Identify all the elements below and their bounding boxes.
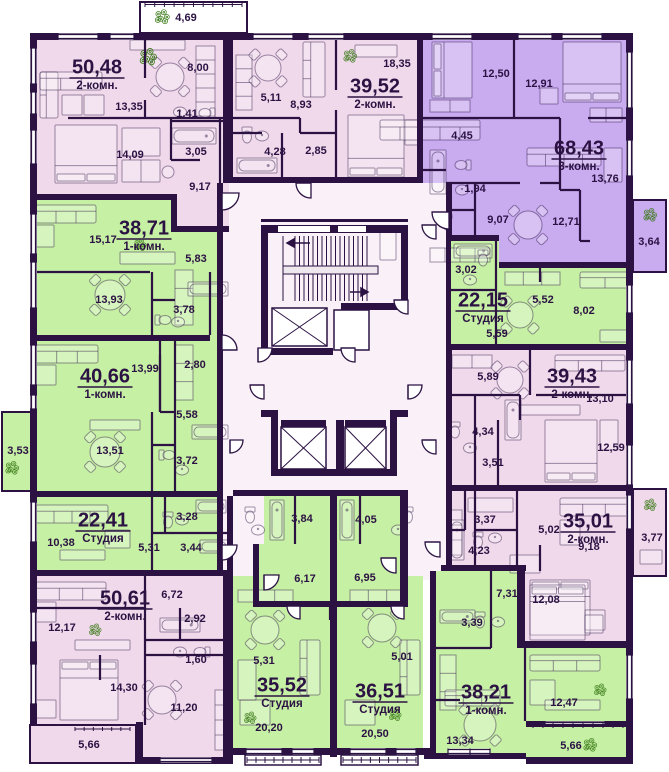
svg-text:4,05: 4,05 — [355, 514, 376, 526]
svg-text:14,30: 14,30 — [110, 682, 138, 694]
svg-text:2-комн.: 2-комн. — [567, 534, 608, 546]
svg-text:Студия: Студия — [462, 313, 503, 325]
svg-text:5,66: 5,66 — [78, 739, 99, 751]
svg-text:1,60: 1,60 — [185, 654, 206, 666]
svg-text:4,23: 4,23 — [468, 545, 489, 557]
svg-text:3-комн.: 3-комн. — [558, 161, 599, 173]
svg-text:6,95: 6,95 — [354, 572, 375, 584]
svg-text:12,71: 12,71 — [552, 216, 580, 228]
svg-text:22,41: 22,41 — [78, 509, 128, 531]
svg-text:35,52: 35,52 — [257, 674, 307, 696]
svg-text:12,17: 12,17 — [48, 622, 76, 634]
svg-text:22,15: 22,15 — [458, 289, 508, 311]
svg-text:36,51: 36,51 — [355, 680, 405, 702]
svg-text:12,50: 12,50 — [482, 68, 510, 80]
svg-text:1,41: 1,41 — [176, 108, 197, 120]
svg-text:6,72: 6,72 — [161, 589, 182, 601]
svg-text:5,01: 5,01 — [391, 651, 412, 663]
svg-text:13,93: 13,93 — [95, 294, 123, 306]
svg-text:1-комн.: 1-комн. — [84, 389, 125, 401]
svg-text:3,72: 3,72 — [176, 455, 197, 467]
svg-text:20,20: 20,20 — [255, 722, 283, 734]
svg-text:3,64: 3,64 — [638, 236, 660, 248]
svg-text:15,17: 15,17 — [89, 234, 117, 246]
svg-text:50,48: 50,48 — [72, 56, 122, 78]
svg-text:4,69: 4,69 — [175, 12, 196, 24]
svg-text:13,34: 13,34 — [446, 735, 474, 747]
svg-text:13,76: 13,76 — [591, 173, 619, 185]
svg-text:11,20: 11,20 — [171, 702, 198, 714]
svg-text:2-комн.: 2-комн. — [104, 611, 145, 623]
svg-text:2,80: 2,80 — [184, 359, 205, 371]
svg-text:4,34: 4,34 — [472, 426, 494, 438]
svg-text:8,93: 8,93 — [290, 99, 311, 111]
svg-text:12,47: 12,47 — [550, 697, 578, 709]
svg-text:4,28: 4,28 — [264, 146, 285, 158]
svg-text:5,31: 5,31 — [138, 542, 159, 554]
svg-text:7,31: 7,31 — [496, 588, 517, 600]
svg-text:3,37: 3,37 — [474, 514, 495, 526]
svg-text:9,07: 9,07 — [487, 214, 508, 226]
svg-text:8,00: 8,00 — [187, 62, 208, 74]
svg-text:35,01: 35,01 — [563, 510, 613, 532]
svg-text:Студия: Студия — [82, 533, 123, 545]
svg-text:2-комн.: 2-комн. — [76, 80, 117, 92]
svg-text:39,52: 39,52 — [350, 75, 400, 97]
svg-text:3,39: 3,39 — [461, 617, 482, 629]
svg-text:3,28: 3,28 — [176, 511, 197, 523]
svg-text:Студия: Студия — [261, 698, 302, 710]
svg-text:5,02: 5,02 — [538, 524, 559, 536]
svg-text:14,09: 14,09 — [116, 149, 144, 161]
svg-text:3,02: 3,02 — [455, 264, 476, 276]
svg-text:5,58: 5,58 — [176, 409, 197, 421]
svg-text:4,45: 4,45 — [451, 130, 472, 142]
svg-text:5,52: 5,52 — [532, 294, 553, 306]
svg-text:20,50: 20,50 — [361, 728, 389, 740]
svg-text:5,11: 5,11 — [261, 92, 282, 104]
svg-text:38,21: 38,21 — [461, 681, 511, 703]
svg-text:5,59: 5,59 — [486, 328, 507, 340]
svg-text:3,77: 3,77 — [641, 532, 662, 544]
svg-text:3,44: 3,44 — [180, 542, 202, 554]
svg-text:3,53: 3,53 — [7, 445, 28, 457]
svg-text:8,02: 8,02 — [573, 305, 594, 317]
svg-text:1-комн.: 1-комн. — [465, 705, 506, 717]
svg-text:40,66: 40,66 — [80, 365, 130, 387]
svg-text:12,59: 12,59 — [597, 442, 625, 454]
svg-text:12,91: 12,91 — [525, 78, 553, 90]
svg-text:5,89: 5,89 — [477, 371, 498, 383]
svg-text:10,38: 10,38 — [47, 537, 75, 549]
svg-text:2,92: 2,92 — [184, 613, 205, 625]
svg-text:3,84: 3,84 — [291, 513, 313, 525]
svg-text:1-комн.: 1-комн. — [123, 241, 164, 253]
svg-text:13,99: 13,99 — [131, 363, 159, 375]
svg-text:2-комн.: 2-комн. — [354, 99, 395, 111]
svg-text:5,83: 5,83 — [185, 253, 206, 265]
svg-text:2,85: 2,85 — [305, 145, 326, 157]
svg-text:5,66: 5,66 — [560, 740, 581, 752]
svg-text:5,31: 5,31 — [253, 655, 274, 667]
svg-text:9,17: 9,17 — [189, 181, 210, 193]
svg-text:Студия: Студия — [359, 704, 400, 716]
svg-text:13,35: 13,35 — [115, 101, 143, 113]
svg-text:39,43: 39,43 — [547, 365, 597, 387]
svg-text:50,61: 50,61 — [100, 587, 150, 609]
svg-text:18,35: 18,35 — [383, 58, 411, 70]
svg-text:3,78: 3,78 — [173, 304, 194, 316]
svg-text:3,51: 3,51 — [482, 457, 503, 469]
svg-text:13,51: 13,51 — [96, 445, 124, 457]
svg-text:12,08: 12,08 — [532, 594, 560, 606]
svg-text:1,94: 1,94 — [464, 183, 486, 195]
svg-text:6,17: 6,17 — [294, 573, 315, 585]
svg-text:3,05: 3,05 — [185, 146, 206, 158]
svg-text:2-комн.: 2-комн. — [551, 389, 592, 401]
svg-text:38,71: 38,71 — [119, 217, 169, 239]
svg-text:68,43: 68,43 — [554, 137, 604, 159]
